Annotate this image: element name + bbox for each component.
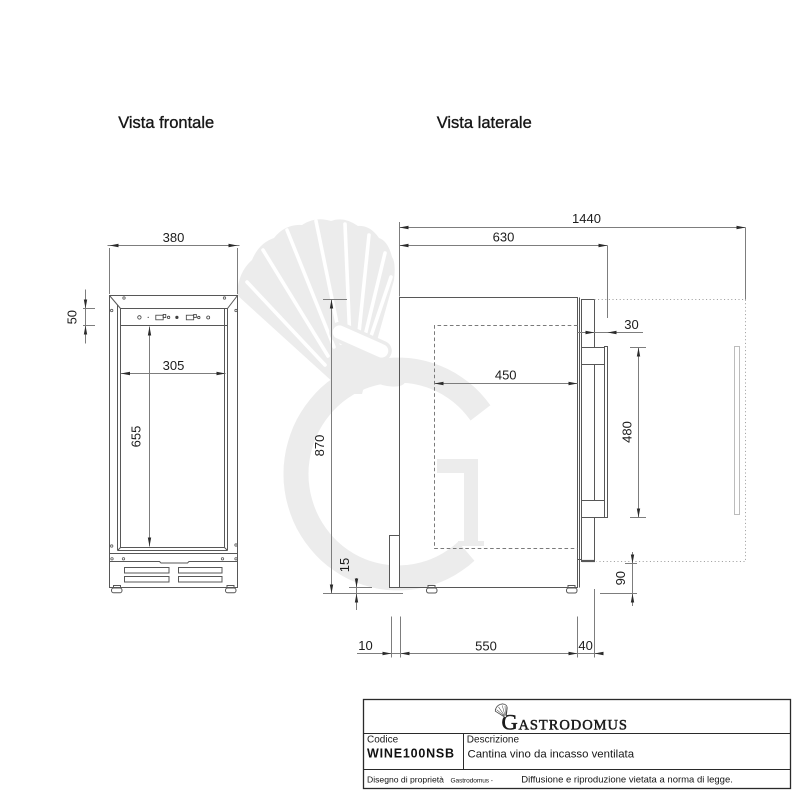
svg-text:Disegno di proprietà: Disegno di proprietà bbox=[367, 775, 444, 785]
svg-text:450: 450 bbox=[495, 368, 517, 383]
svg-text:380: 380 bbox=[163, 230, 185, 245]
svg-text:WINE100NSB: WINE100NSB bbox=[367, 747, 455, 761]
svg-text:870: 870 bbox=[312, 435, 327, 457]
svg-text:1440: 1440 bbox=[572, 211, 601, 226]
svg-text:90: 90 bbox=[613, 571, 628, 585]
svg-text:655: 655 bbox=[128, 426, 143, 448]
svg-text:305: 305 bbox=[163, 358, 185, 373]
svg-text:Vista frontale: Vista frontale bbox=[118, 114, 214, 132]
svg-text:480: 480 bbox=[620, 421, 635, 443]
svg-text:Descrizione: Descrizione bbox=[467, 735, 520, 746]
svg-text:30: 30 bbox=[624, 317, 638, 332]
svg-text:50: 50 bbox=[65, 310, 80, 324]
svg-text:Codice: Codice bbox=[367, 735, 399, 746]
svg-text:Vista laterale: Vista laterale bbox=[437, 114, 532, 132]
svg-text:630: 630 bbox=[493, 230, 515, 245]
svg-text:ASTRODOMUS: ASTRODOMUS bbox=[519, 718, 628, 734]
svg-text:550: 550 bbox=[475, 638, 497, 653]
svg-text:Diffusione e riproduzione viet: Diffusione e riproduzione vietata a norm… bbox=[521, 775, 733, 786]
svg-text:Gastrodomus -: Gastrodomus - bbox=[451, 777, 493, 784]
svg-text:Cantina vino da incasso ventil: Cantina vino da incasso ventilata bbox=[468, 749, 635, 761]
svg-text:15: 15 bbox=[337, 558, 352, 572]
svg-text:10: 10 bbox=[358, 638, 372, 653]
svg-text:40: 40 bbox=[578, 638, 592, 653]
